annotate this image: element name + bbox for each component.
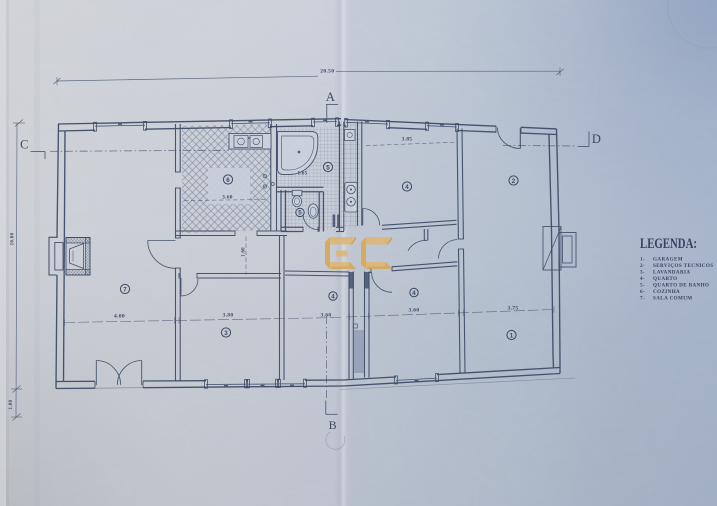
svg-text:QUARTO DE BANHO: QUARTO DE BANHO — [653, 282, 709, 288]
svg-text:GARAGEM: GARAGEM — [653, 256, 683, 262]
svg-text:5-: 5- — [640, 282, 645, 288]
svg-text:4-: 4- — [640, 276, 645, 282]
svg-text:COZINHA: COZINHA — [653, 289, 680, 295]
svg-text:2-: 2- — [640, 263, 645, 269]
svg-text:6-: 6- — [640, 289, 645, 295]
svg-text:QUARTO: QUARTO — [653, 276, 678, 282]
svg-text:7-: 7- — [640, 295, 645, 301]
svg-text:SERVIÇOS TECNICOS: SERVIÇOS TECNICOS — [653, 263, 713, 269]
svg-text:1-: 1- — [640, 256, 645, 262]
svg-text:3-: 3- — [640, 269, 645, 275]
svg-text:SALA COMUM: SALA COMUM — [653, 295, 693, 301]
svg-text:LAVANDARIA: LAVANDARIA — [653, 269, 691, 275]
svg-text:LEGENDA:: LEGENDA: — [640, 236, 697, 252]
